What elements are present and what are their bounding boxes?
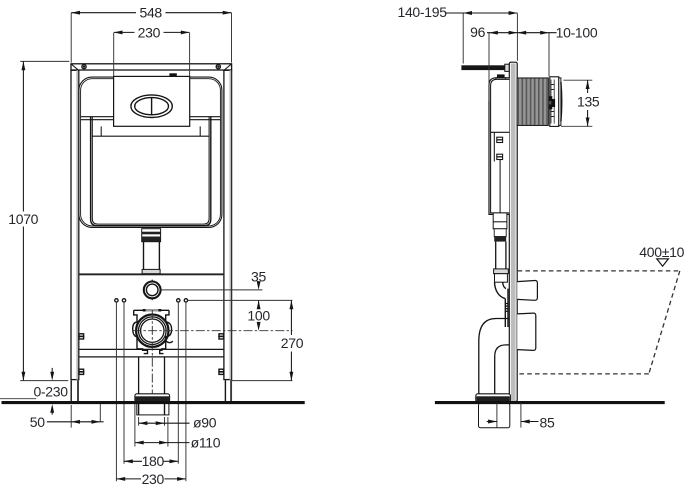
svg-text:ø110: ø110 <box>191 434 221 450</box>
svg-text:230: 230 <box>142 471 165 487</box>
svg-text:35: 35 <box>251 268 266 284</box>
svg-text:0-230: 0-230 <box>33 383 68 399</box>
svg-text:400±10: 400±10 <box>639 244 684 260</box>
svg-text:270: 270 <box>281 335 304 351</box>
svg-text:230: 230 <box>138 24 161 40</box>
svg-text:180: 180 <box>142 453 165 469</box>
svg-text:1070: 1070 <box>8 211 38 227</box>
svg-text:140-195: 140-195 <box>397 4 447 20</box>
svg-text:135: 135 <box>577 93 600 109</box>
svg-text:100: 100 <box>247 308 270 324</box>
svg-text:85: 85 <box>540 415 555 431</box>
svg-text:96: 96 <box>470 24 485 40</box>
svg-text:10-100: 10-100 <box>556 24 598 40</box>
svg-text:50: 50 <box>30 414 45 430</box>
svg-text:ø90: ø90 <box>193 415 217 431</box>
svg-text:548: 548 <box>139 4 162 20</box>
